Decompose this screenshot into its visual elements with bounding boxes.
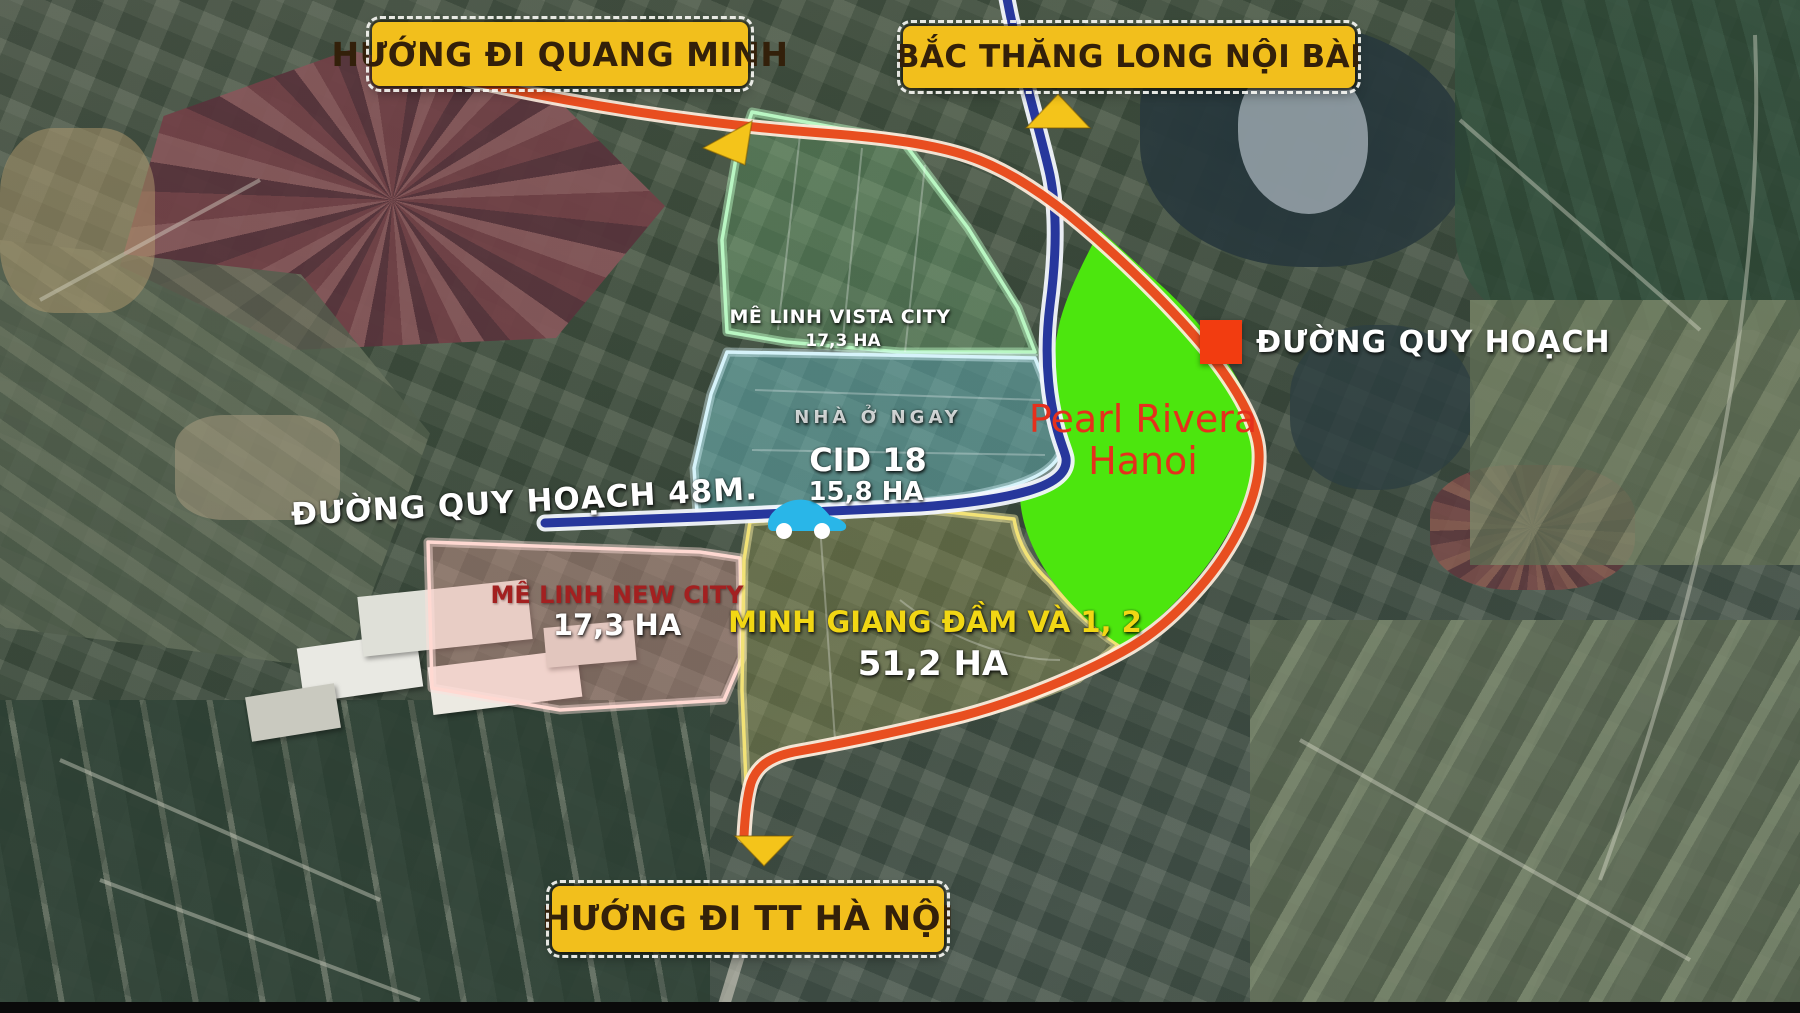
sign-quang-minh: HƯỚNG ĐI QUANG MINH xyxy=(372,22,748,86)
cid18-name: CID 18 xyxy=(809,441,927,479)
project-name-line1: Pearl Rivera xyxy=(1029,398,1257,440)
planned-road-label: ĐƯỜNG QUY HOẠCH xyxy=(1256,325,1611,360)
bottom-letterbox-bar xyxy=(0,1002,1800,1013)
location-map: HƯỚNG ĐI QUANG MINH BẮC THĂNG LONG NỘI B… xyxy=(0,0,1800,1013)
vista-city-name: MÊ LINH VISTA CITY xyxy=(729,306,950,328)
minh-giang-name: MINH GIANG ĐẦM VÀ 1, 2 xyxy=(728,605,1142,639)
road-stub-south xyxy=(724,952,740,1005)
project-name-label: Pearl Rivera Hanoi xyxy=(1029,398,1257,482)
arrow-down-icon xyxy=(735,836,793,866)
new-city-name: MÊ LINH NEW CITY xyxy=(491,581,744,609)
planned-road-legend: ĐƯỜNG QUY HOẠCH xyxy=(1200,320,1611,364)
sign-tt-ha-noi: HƯỚNG ĐI TT HÀ NỘI xyxy=(552,886,944,952)
minh-giang-size: 51,2 HA xyxy=(858,644,1009,684)
road-legend-swatch-icon xyxy=(1200,320,1242,364)
vista-city-size: 17,3 HA xyxy=(805,331,880,351)
cid18-note: NHÀ Ở NGAY xyxy=(794,407,961,428)
cid18-size: 15,8 HA xyxy=(808,477,923,507)
project-name-line2: Hanoi xyxy=(1029,440,1257,482)
sign-bac-thang-long-noi-bai: BẮC THĂNG LONG NỘI BÀI xyxy=(903,26,1355,88)
new-city-size: 17,3 HA xyxy=(553,608,681,642)
